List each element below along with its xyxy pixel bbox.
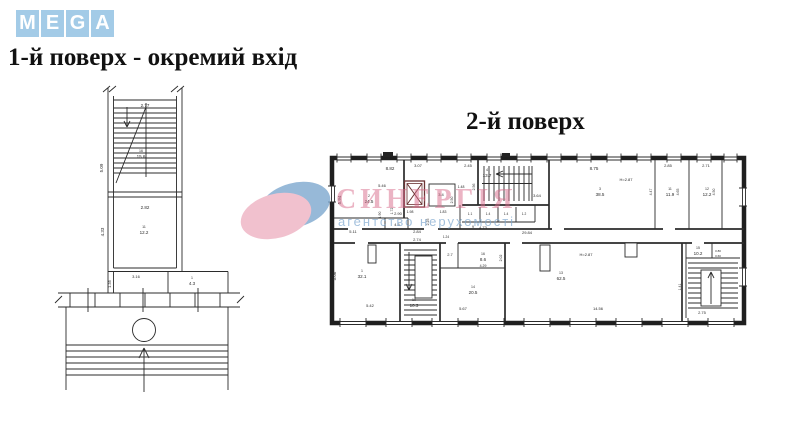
plan1-walls (108, 88, 228, 293)
plan-label: 5.11 (349, 229, 357, 234)
plan-label: 1.83 (440, 210, 447, 214)
plan-label: 24.5 (365, 199, 374, 204)
plan2-bearing-walls (334, 160, 744, 321)
plan-label: 38.5 (596, 192, 605, 197)
porch-outline (66, 307, 228, 390)
plan-label: 15 (696, 246, 700, 250)
plan-label: 1.4 (504, 212, 509, 216)
plan-label: 9 (472, 225, 474, 229)
plan-label: 2.02 (499, 255, 503, 262)
plan-label: 2.50 (450, 197, 454, 204)
vent-stub (502, 153, 510, 157)
plan2-mid-stair-arrow (406, 252, 412, 290)
plan-label: H=2.87 (619, 177, 633, 182)
floor-plans-drawing: 2.775.091615.62.824.331112.23.161.3514.3 (0, 0, 800, 434)
plan-label: 13.7 (483, 173, 492, 178)
plan-label: 1.41 (678, 284, 682, 291)
plan-label: 12.2 (140, 230, 149, 235)
entrance-arrow (139, 348, 149, 392)
plan-label: 2.71 (702, 163, 711, 168)
plan-label: 8.75 (590, 166, 599, 171)
plan-label: 4.5 (394, 222, 400, 227)
plan-label: 11.9 (666, 192, 675, 197)
plan-label: 4.29 (480, 264, 487, 268)
plan-label: 2.74 (413, 237, 422, 242)
plan-label: 10 (412, 298, 416, 302)
duct-stub (368, 245, 376, 263)
plan-label: 2 (368, 194, 370, 198)
plan-label: 2.25 (426, 219, 430, 226)
porch-column (133, 319, 156, 342)
plan-label: 4.3 (189, 281, 196, 286)
plan2-labels: 8.825.945.46224.52.901.901.725.114.52.84… (332, 163, 721, 315)
plan-label: 4.50 (712, 189, 716, 196)
plan-label: 12.2 (703, 192, 712, 197)
plan-label: 5.42 (366, 303, 375, 308)
plan2-top-stair-divider (482, 166, 532, 201)
vent-stub (383, 152, 393, 157)
plan2-partition-walls (334, 160, 740, 318)
plan-label: 11 (142, 225, 146, 229)
plan-label: 5.46 (378, 183, 387, 188)
plan-label: 12 (705, 187, 709, 191)
plan-label: 3.64 (533, 193, 542, 198)
plan-label: 2.75 (698, 310, 707, 315)
plan-label: 8.82 (386, 166, 395, 171)
plan-label: 3.16 (132, 274, 141, 279)
plan-label: 2.84 (413, 229, 422, 234)
plan-label: 20.5 (469, 290, 478, 295)
plan-label: 29.84 (522, 230, 533, 235)
plan-label: 1 (191, 276, 193, 280)
plan-label: 1.90 (378, 212, 382, 219)
plan-label: 62.5 (557, 276, 566, 281)
plan-label: 1.2 (522, 212, 527, 216)
plan-label: 11 (668, 187, 672, 191)
plan2-mid-stair-well (415, 256, 432, 298)
plan-label: 4.65 (676, 189, 680, 196)
plan-label: 15.6 (137, 154, 146, 159)
plan-label: 2.56 (472, 184, 476, 191)
plan-label: 0.60 (715, 254, 721, 258)
plan1-stair-treads (114, 108, 176, 173)
plan-label: 3 (599, 187, 601, 191)
plan-label: 10.2 (694, 251, 703, 256)
plan-label: 16 (139, 149, 143, 153)
entrance-steps (66, 345, 228, 375)
plan-label: 2.85 (664, 163, 673, 168)
plan-label: 2.90 (394, 211, 403, 216)
plan-label: 2.77 (141, 103, 150, 108)
plan-label: 4.73 (479, 225, 488, 230)
plan1-stair-arrow (124, 107, 130, 127)
second-floor-plan: 8.825.945.46224.52.901.901.725.114.52.84… (328, 152, 747, 327)
screenshot-root: M E G A 1-й поверх - окремий вхід 2-й по… (0, 0, 800, 434)
plan-label: 0.80 (715, 249, 721, 253)
plan-label: 14 (471, 285, 475, 289)
plan2-windows (328, 154, 747, 328)
plan-label: 8.6 (480, 257, 487, 262)
plan-label: 13 (559, 271, 563, 275)
plan-label: 32.1 (358, 274, 367, 279)
plan-label: 1.98 (407, 210, 414, 214)
facade-wall-band (58, 288, 240, 312)
elevator-shaft (405, 181, 425, 207)
plan-label: 2.82 (141, 205, 150, 210)
plan-label: 14.56 (593, 306, 604, 311)
plan-label: 1.4 (486, 212, 491, 216)
plan-label: 4.33 (100, 227, 105, 236)
plan-label: 1.72 (390, 208, 394, 215)
plan-label: 1 (361, 269, 363, 273)
plan-label: 1.24 (443, 235, 449, 239)
plan-label: 16 (481, 252, 485, 256)
plan-label: 1.48 (458, 185, 465, 189)
plan-label: H=2.87 (579, 252, 593, 257)
plan-label: 5.67 (459, 306, 468, 311)
plan-label: 2.45 (464, 163, 473, 168)
plan-label: 2.7 (447, 252, 453, 257)
duct-stub (625, 243, 637, 257)
duct-stub (540, 245, 550, 271)
plan-label: 1.1 (468, 212, 473, 216)
plan-label: 3.07 (414, 163, 423, 168)
plan-label: 4 (486, 168, 488, 172)
plan-label: 4.47 (649, 189, 653, 196)
plan-label: 5.09 (99, 163, 104, 172)
plan-label: 1.35 (107, 279, 112, 288)
first-floor-plan: 2.775.091615.62.824.331112.23.161.3514.3 (55, 86, 244, 392)
wall-break-marks (55, 86, 244, 303)
plan-label: 3.4 (438, 192, 444, 197)
plan-label: 10.3 (410, 303, 419, 308)
plan-label: 5.06 (332, 271, 337, 280)
plan-label: 5.94 (337, 195, 342, 204)
